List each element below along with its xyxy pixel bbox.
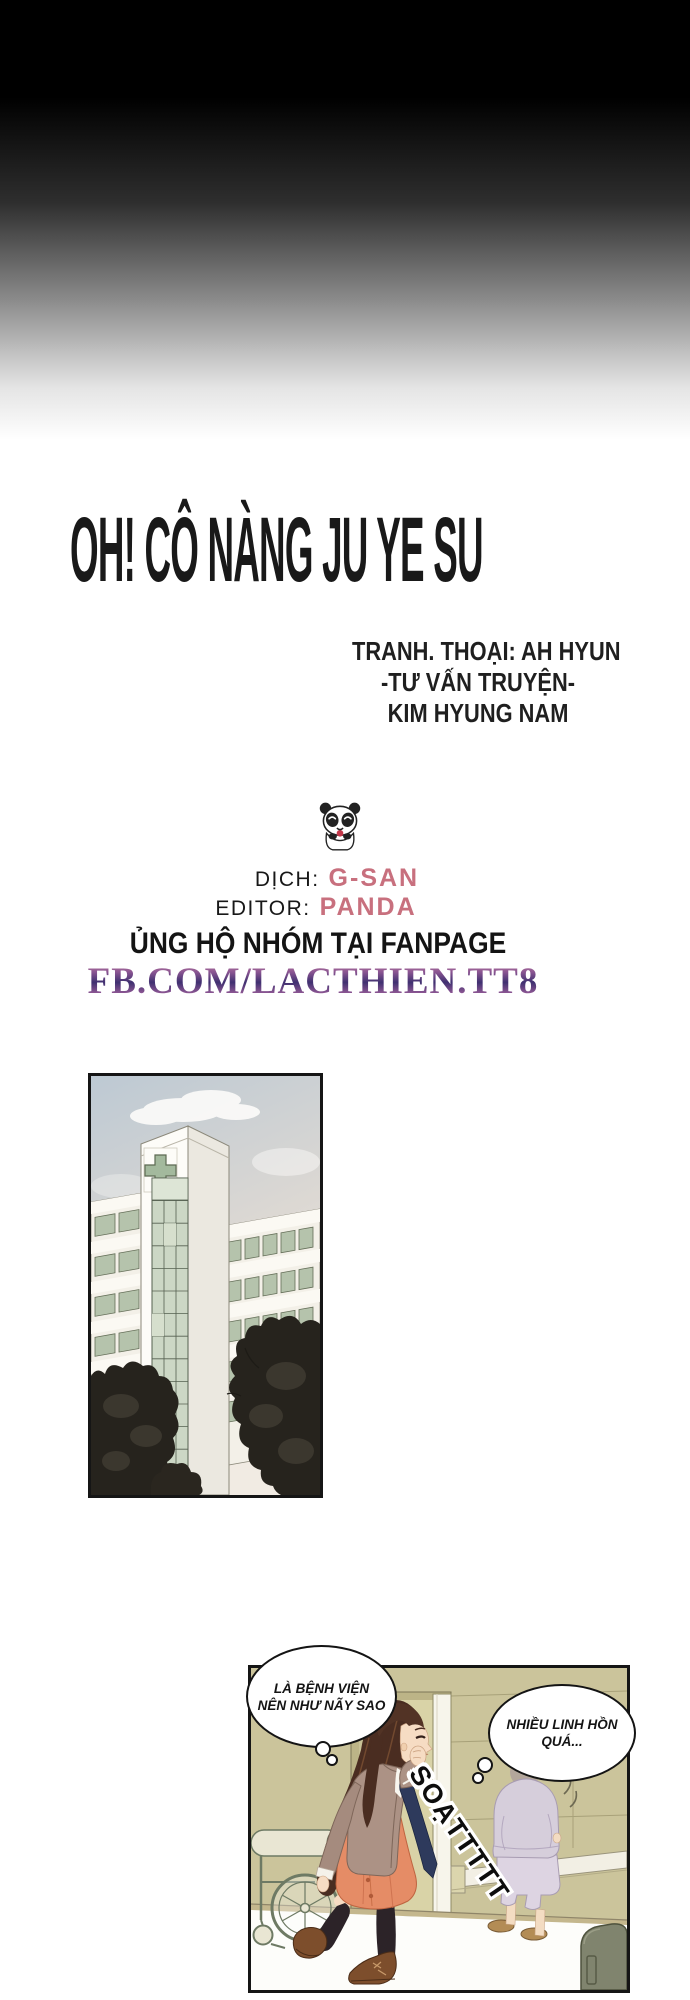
- credit-line: KIM HYUNG NAM: [352, 698, 604, 729]
- comic-page: OH! CÔ NÀNG JU YE SU TRANH. THOẠI: AH HY…: [0, 0, 690, 2000]
- top-gradient-banner: [0, 0, 690, 440]
- bench-chair: [581, 1924, 627, 1990]
- credit-line: TRANH. THOẠI: AH HYUN: [352, 636, 604, 667]
- thought-bubble-dot: [472, 1772, 484, 1784]
- bubble-text-line: QUÁ...: [541, 1733, 582, 1750]
- bubble-text-line: NÊN NHƯ NÃY SAO: [258, 1697, 386, 1714]
- editor-name: PANDA: [320, 893, 417, 922]
- fanpage-support-text: ỦNG HỘ NHÓM TẠI FANPAGE: [130, 927, 506, 961]
- translator-label: DỊCH:: [255, 868, 320, 892]
- thought-bubble-1: LÀ BỆNH VIỆN NÊN NHƯ NÃY SAO: [246, 1645, 397, 1748]
- editor-label: EDITOR:: [215, 897, 310, 921]
- page-title: OH! CÔ NÀNG JU YE SU: [70, 506, 483, 594]
- translator-credit: DỊCH: G-SAN: [255, 864, 419, 893]
- author-credits: TRANH. THOẠI: AH HYUN -TƯ VẤN TRUYỆN- KI…: [352, 636, 604, 729]
- hospital-panel: [88, 1073, 323, 1498]
- thought-bubble-2: NHIỀU LINH HỒN QUÁ...: [488, 1684, 636, 1782]
- thought-bubble-dot: [477, 1757, 493, 1773]
- fanpage-url-text: FB.COM/LACTHIEN.TT8: [88, 960, 539, 1003]
- translator-name: G-SAN: [329, 864, 420, 893]
- credit-line: -TƯ VẤN TRUYỆN-: [352, 667, 604, 698]
- editor-credit: EDITOR: PANDA: [215, 893, 416, 922]
- panda-icon: [312, 798, 368, 854]
- bubble-text-line: LÀ BỆNH VIỆN: [274, 1680, 369, 1697]
- bubble-text-line: NHIỀU LINH HỒN: [507, 1716, 618, 1733]
- thought-bubble-dot: [326, 1754, 338, 1766]
